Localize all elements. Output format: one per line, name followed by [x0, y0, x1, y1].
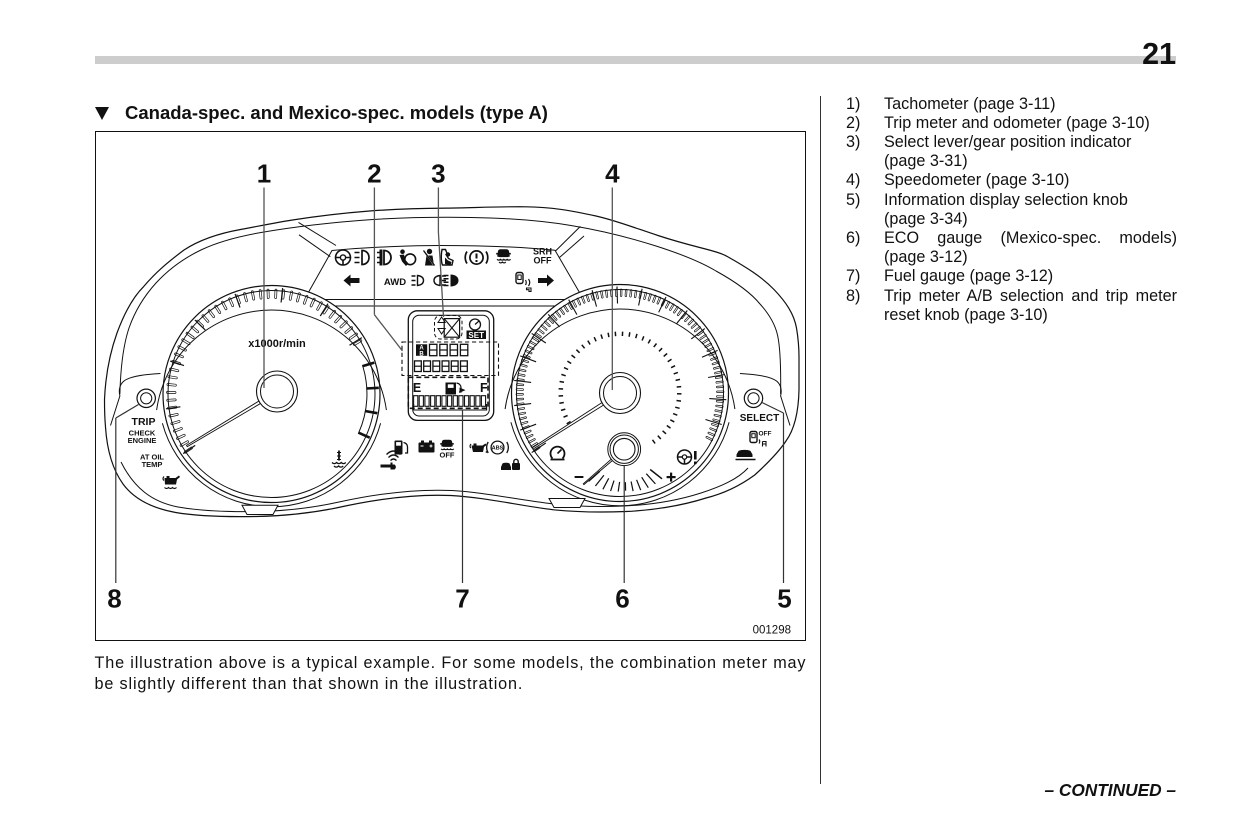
svg-text:001298: 001298 — [753, 625, 791, 637]
svg-text:OFF: OFF — [534, 256, 552, 266]
svg-text:SET: SET — [468, 331, 484, 340]
svg-text:4: 4 — [605, 159, 620, 189]
svg-text:5: 5 — [777, 584, 791, 614]
svg-text:7: 7 — [455, 584, 469, 614]
svg-text:OFF: OFF — [759, 431, 772, 438]
svg-text:6: 6 — [615, 584, 629, 614]
svg-text:OFF: OFF — [440, 451, 455, 460]
svg-text:8: 8 — [107, 584, 121, 614]
svg-text:B: B — [419, 351, 424, 357]
svg-text:E: E — [413, 381, 421, 395]
svg-text:SELECT: SELECT — [740, 413, 779, 424]
svg-text:TRIP: TRIP — [132, 416, 156, 428]
svg-text:2: 2 — [367, 159, 381, 189]
svg-text:1: 1 — [257, 159, 271, 189]
svg-text:TEMP: TEMP — [142, 460, 163, 469]
svg-text:ENGINE: ENGINE — [128, 436, 157, 445]
svg-text:AWD: AWD — [384, 277, 406, 288]
svg-text:F: F — [480, 381, 488, 395]
svg-text:ABS: ABS — [492, 446, 504, 452]
svg-text:x1000r/min: x1000r/min — [248, 338, 306, 350]
svg-text:3: 3 — [431, 159, 445, 189]
